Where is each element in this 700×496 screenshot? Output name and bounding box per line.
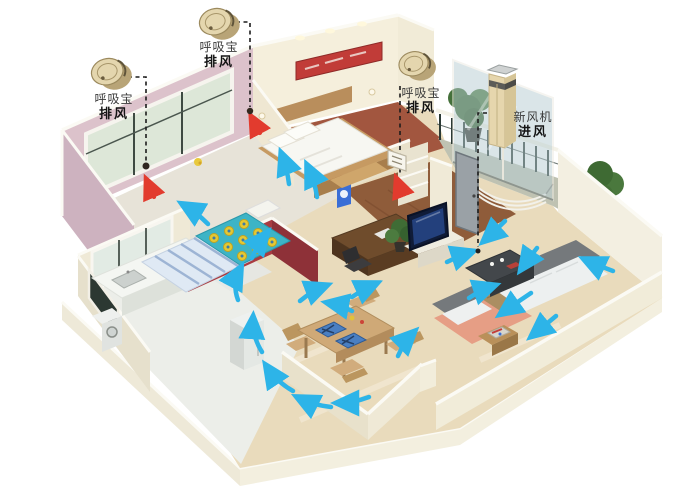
callout-exhaust-2-name: 呼吸宝 bbox=[190, 40, 248, 55]
front-door bbox=[456, 152, 478, 234]
entry-shelf bbox=[398, 142, 428, 206]
callout-exhaust-3: 呼吸宝 排风 bbox=[392, 86, 450, 116]
callout-exhaust-1-name: 呼吸宝 bbox=[84, 92, 144, 107]
callout-exhaust-3-mode: 排风 bbox=[392, 101, 450, 116]
kids-room-ceiling-vent bbox=[143, 163, 150, 170]
callout-fresh-air-name: 新风机 bbox=[502, 110, 564, 125]
callout-fresh-air: 新风机 进风 bbox=[502, 110, 564, 140]
callout-exhaust-2-mode: 排风 bbox=[190, 55, 248, 70]
callout-exhaust-2: 呼吸宝 排风 bbox=[190, 40, 248, 70]
callout-fresh-air-mode: 进风 bbox=[502, 125, 564, 140]
exhaust-device-icon-1 bbox=[88, 53, 135, 95]
callout-exhaust-1-mode: 排风 bbox=[84, 107, 144, 122]
ventilation-floorplan-diagram: 呼吸宝 排风 呼吸宝 排风 呼吸宝 排风 新风机 进风 bbox=[0, 0, 700, 496]
master-ceiling-vent bbox=[247, 108, 253, 114]
isometric-apartment-scene bbox=[0, 0, 700, 496]
exhaust-device-icon-2 bbox=[196, 3, 243, 45]
callout-exhaust-1: 呼吸宝 排风 bbox=[84, 92, 144, 122]
bedside-lamp bbox=[259, 113, 265, 119]
intake-floor-point bbox=[476, 249, 481, 254]
callout-exhaust-3-name: 呼吸宝 bbox=[392, 86, 450, 101]
refrigerator bbox=[230, 312, 264, 370]
bedside-lamp bbox=[369, 89, 375, 95]
